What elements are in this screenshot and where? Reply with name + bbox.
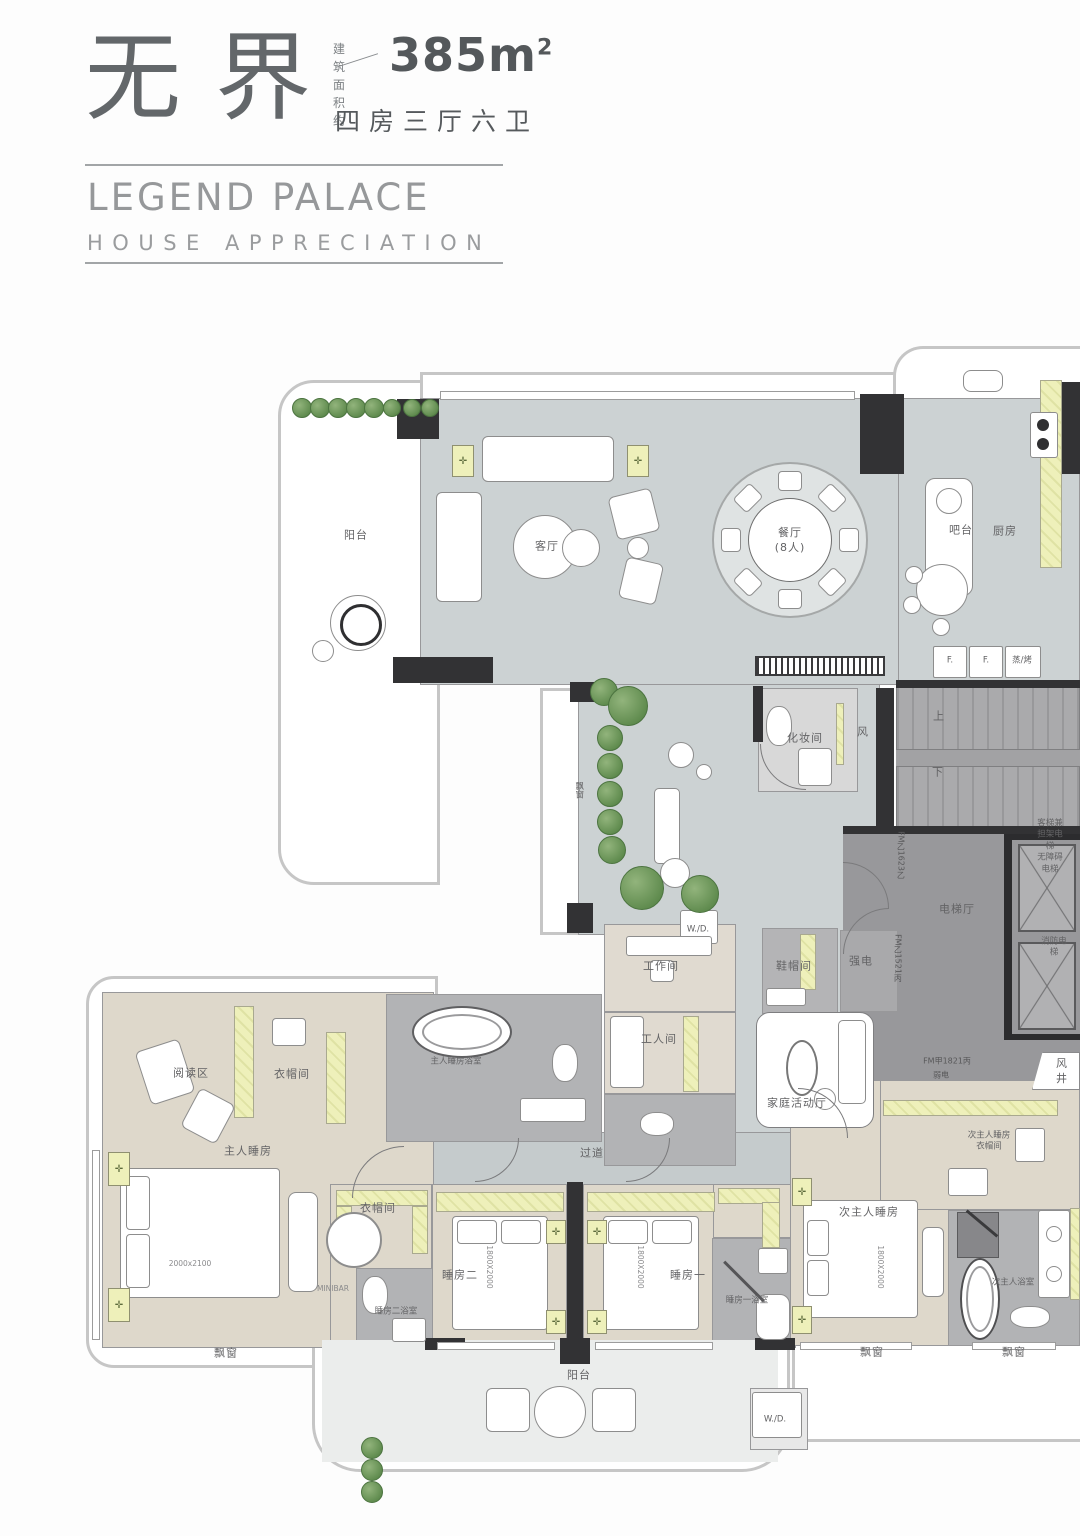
closet-chair	[272, 1018, 306, 1046]
plant	[597, 781, 623, 807]
window-master-west	[92, 1150, 100, 1340]
plant	[361, 1459, 383, 1481]
plant	[361, 1481, 383, 1503]
bedroom-2-toilet	[362, 1276, 388, 1314]
bar-chair	[903, 596, 921, 614]
sofa-side	[436, 492, 482, 602]
work-desk	[626, 936, 712, 956]
garden-stone-1	[668, 742, 694, 768]
passenger-elevator-cab	[1018, 844, 1076, 932]
pillow	[652, 1220, 692, 1244]
wall-stair-west	[876, 688, 894, 830]
sm-basin	[1046, 1226, 1062, 1242]
pillow	[457, 1220, 497, 1244]
maid-wardrobe-strip	[683, 1016, 699, 1092]
sm-double-vanity	[1038, 1210, 1070, 1298]
washer-dryer-bottom-box	[752, 1392, 802, 1438]
wall-bedroom-separator	[567, 1182, 583, 1348]
coffee-table-small	[562, 529, 600, 567]
dining-table	[748, 498, 832, 582]
plant	[310, 398, 330, 418]
pillow	[807, 1220, 829, 1256]
floor-outlet: ✛	[792, 1178, 812, 1206]
plant	[681, 875, 719, 913]
floor-outlet: ✛	[587, 1220, 607, 1244]
pillow	[501, 1220, 541, 1244]
floor-outlet: ✛	[452, 445, 474, 477]
dining-chair	[778, 471, 802, 491]
pillow	[608, 1220, 648, 1244]
area-value: 385m2	[389, 28, 553, 82]
garden-west-outline	[540, 688, 580, 935]
balcony-round-chair	[340, 604, 382, 646]
maid-bed	[610, 1016, 644, 1088]
layout-spec: 四房三厅六卫	[335, 102, 539, 138]
plant	[328, 398, 348, 418]
master-vanity	[520, 1098, 586, 1122]
plant	[597, 753, 623, 779]
plant	[361, 1437, 383, 1459]
stair-flight-upper	[896, 686, 1080, 750]
balcony-chair-left	[486, 1388, 530, 1432]
bar-sink	[936, 488, 962, 514]
bar-chair	[905, 566, 923, 584]
dining-chair	[721, 528, 741, 552]
bedroom-2-headboard-strip	[436, 1192, 564, 1212]
floor-outlet: ✛	[546, 1310, 566, 1334]
stair-flight-lower	[896, 766, 1080, 830]
window-bedroom2-sill	[437, 1342, 555, 1350]
divider-bottom	[85, 262, 503, 264]
sm-toilet	[1010, 1306, 1050, 1328]
bedroom-1-sink	[758, 1248, 788, 1274]
project-name: LEGEND PALACE	[87, 176, 431, 219]
plant	[292, 398, 312, 418]
wall-pillar	[393, 657, 493, 683]
garden-stone-2	[696, 764, 712, 780]
master-rug	[326, 1212, 382, 1268]
dining-chair	[839, 528, 859, 552]
plant	[597, 809, 623, 835]
powder-toilet	[766, 706, 792, 746]
powder-cabinet-strip	[836, 703, 844, 765]
plant	[421, 399, 439, 417]
window-smbath-sill	[972, 1342, 1056, 1350]
bedroom-1-headboard-strip	[587, 1192, 715, 1212]
pillow	[807, 1260, 829, 1296]
plant	[597, 725, 623, 751]
floor-outlet: ✛	[108, 1152, 130, 1186]
vent-grille	[755, 656, 885, 676]
page-title: 无界	[85, 28, 345, 129]
steam-oven-box	[1005, 646, 1041, 678]
kitchen-sink	[963, 370, 1003, 392]
sm-bath-vanity-strip	[1070, 1208, 1080, 1300]
plant	[608, 686, 648, 726]
balcony-table	[534, 1386, 586, 1438]
window-bedroom1-sill	[595, 1342, 713, 1350]
plant	[403, 399, 421, 417]
wall-pillar	[567, 903, 593, 933]
kitchen-cabinet-strip	[1040, 380, 1062, 568]
bar-chair	[932, 618, 950, 636]
sofa-main	[482, 436, 614, 482]
second-master-vanity-desk	[948, 1168, 988, 1196]
second-master-closet-strip	[883, 1100, 1058, 1116]
sm-basin	[1046, 1266, 1062, 1282]
project-subtitle: HOUSE APPRECIATION	[87, 231, 491, 255]
pillow	[126, 1234, 150, 1288]
wall-pillar	[560, 1338, 590, 1364]
floor-outlet: ✛	[108, 1288, 130, 1322]
second-master-bed	[803, 1200, 918, 1318]
burner	[1037, 438, 1049, 450]
fridge-box-1	[933, 646, 967, 678]
garden-bench	[654, 788, 680, 864]
bedroom-1-closet-L-side	[762, 1202, 780, 1248]
plant	[346, 398, 366, 418]
sm-bathtub-inner	[966, 1266, 994, 1332]
plant	[364, 398, 384, 418]
closet-cabinet	[1015, 1128, 1045, 1162]
header: 无界 建 筑 面积约 385m2 四房三厅六卫 LEGEND PALACE HO…	[85, 18, 565, 278]
work-chair	[650, 960, 674, 982]
maid-toilet	[640, 1112, 674, 1136]
plant	[598, 836, 626, 864]
floor-outlet: ✛	[587, 1310, 607, 1334]
shoe-cabinet-strip	[800, 934, 816, 990]
master-toilet	[552, 1044, 578, 1082]
balcony-chair-right	[592, 1388, 636, 1432]
plant	[620, 866, 664, 910]
elevator-shaft-block	[1004, 834, 1080, 1040]
wall-pillar	[860, 394, 904, 474]
divider-top	[85, 164, 503, 166]
stair-landing	[896, 750, 1080, 766]
side-table	[627, 537, 649, 559]
plant	[383, 399, 401, 417]
floor-outlet: ✛	[792, 1306, 812, 1334]
floor-outlet: ✛	[627, 445, 649, 477]
wall-stair-top	[896, 680, 1080, 688]
second-master-bench	[922, 1227, 944, 1297]
family-sofa	[838, 1020, 866, 1104]
master-bathtub-inner	[422, 1014, 502, 1050]
window-living-top	[440, 391, 855, 400]
master-bench	[288, 1192, 318, 1292]
fire-elevator-cab	[1018, 942, 1076, 1030]
burner	[1037, 419, 1049, 431]
window-sm-sill	[800, 1342, 912, 1350]
shoe-bench	[766, 988, 806, 1006]
fridge-box-2	[969, 646, 1003, 678]
closet-2-strip-right	[412, 1206, 428, 1254]
floor-plan-poster: 无界 建 筑 面积约 385m2 四房三厅六卫 LEGEND PALACE HO…	[0, 0, 1080, 1536]
bar-table	[916, 564, 968, 616]
balcony-stool	[312, 640, 334, 662]
master-closet-strip-2	[326, 1032, 346, 1124]
master-closet-strip-1	[234, 1006, 254, 1118]
floor-outlet: ✛	[546, 1220, 566, 1244]
dining-chair	[778, 589, 802, 609]
wall-powder-west	[753, 686, 763, 742]
bedroom-2-sink	[392, 1318, 426, 1342]
